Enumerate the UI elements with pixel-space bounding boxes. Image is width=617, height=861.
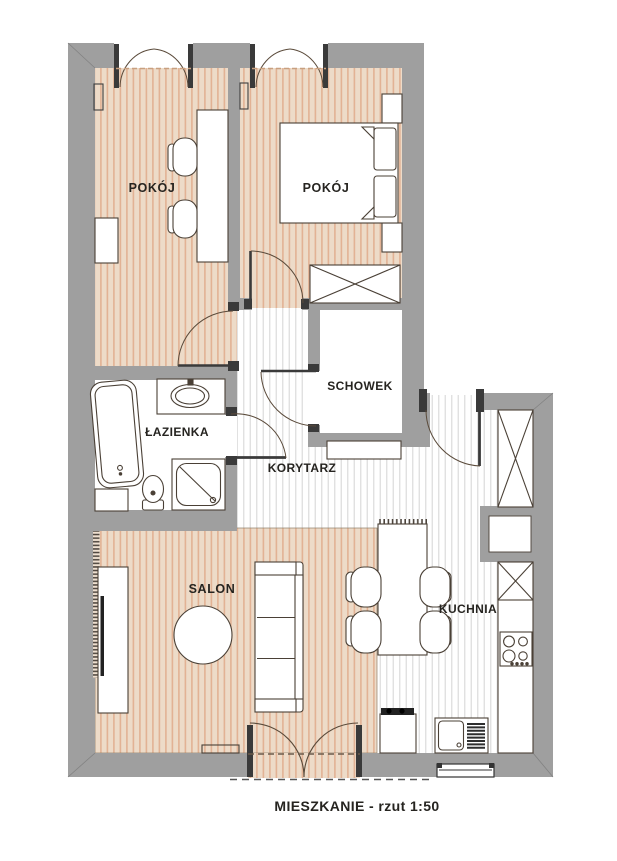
washbasin	[157, 379, 225, 414]
wardrobe	[310, 265, 400, 303]
chair	[351, 567, 381, 607]
sink-unit	[435, 718, 488, 753]
sofa	[255, 562, 303, 712]
pillow	[374, 128, 396, 170]
hall-cabinet	[327, 441, 401, 459]
window-jamb	[323, 44, 328, 88]
window-jamb	[114, 44, 119, 88]
wall-bottom-1	[68, 753, 248, 777]
plan-caption: MIESZKANIE - rzut 1:50	[274, 798, 439, 814]
label-kuchnia: KUCHNIA	[439, 602, 497, 616]
floor-schowek	[320, 308, 402, 434]
label-salon: SALON	[189, 582, 236, 596]
wall-bathroom-north	[95, 366, 237, 380]
window-jamb	[250, 44, 255, 88]
label-pokoj-1: POKÓJ	[129, 180, 176, 195]
bathtub	[89, 379, 144, 489]
nightstand	[382, 223, 402, 252]
door-jamb	[228, 302, 239, 311]
label-schowek: SCHOWEK	[327, 379, 392, 393]
door-jamb	[476, 389, 484, 412]
label-korytarz: KORYTARZ	[268, 461, 337, 475]
tap	[188, 379, 193, 385]
chair	[420, 567, 450, 607]
label-lazienka: ŁAZIENKA	[145, 425, 209, 439]
wall-top-2	[193, 43, 250, 68]
floor-plan: POKÓJ POKÓJ SCHOWEK ŁAZIENKA KORYTARZ SA…	[0, 0, 617, 861]
door-jamb	[301, 299, 309, 309]
window-opening	[250, 43, 328, 68]
wall-room-divider	[228, 68, 240, 298]
cabinet	[95, 218, 118, 263]
toilet	[143, 476, 164, 511]
oven	[380, 708, 416, 753]
washing-machine	[95, 489, 128, 511]
shower	[172, 459, 225, 510]
upper-cabinet	[498, 562, 533, 600]
door-leaf	[247, 725, 253, 777]
desk	[197, 110, 228, 262]
label-pokoj-2: POKÓJ	[303, 180, 350, 195]
floor-salon	[95, 528, 377, 753]
window-jamb	[188, 44, 193, 88]
wall-right-upper	[402, 43, 424, 447]
chair	[351, 611, 381, 653]
nightstand	[382, 94, 402, 123]
door-jamb	[419, 389, 427, 412]
wall-right-lower	[533, 393, 553, 777]
chair	[420, 611, 450, 653]
wall-schowek-west-1	[308, 310, 320, 371]
shaft-duct	[489, 516, 531, 552]
tall-cabinet-fridge	[498, 410, 533, 507]
wall-bathroom-south	[95, 510, 237, 531]
door-leaf	[356, 725, 362, 777]
window-opening	[114, 43, 193, 68]
cooktop	[500, 632, 532, 666]
floor-plan-drawing: POKÓJ POKÓJ SCHOWEK ŁAZIENKA KORYTARZ SA…	[0, 0, 617, 861]
desk-chair	[173, 138, 197, 176]
tv	[101, 596, 105, 676]
kitchen-radiator	[437, 763, 494, 777]
wall-left	[68, 43, 95, 777]
pillow	[374, 176, 396, 217]
desk-chair	[173, 200, 197, 238]
coffee-table	[174, 606, 232, 664]
door-jamb	[226, 407, 237, 416]
